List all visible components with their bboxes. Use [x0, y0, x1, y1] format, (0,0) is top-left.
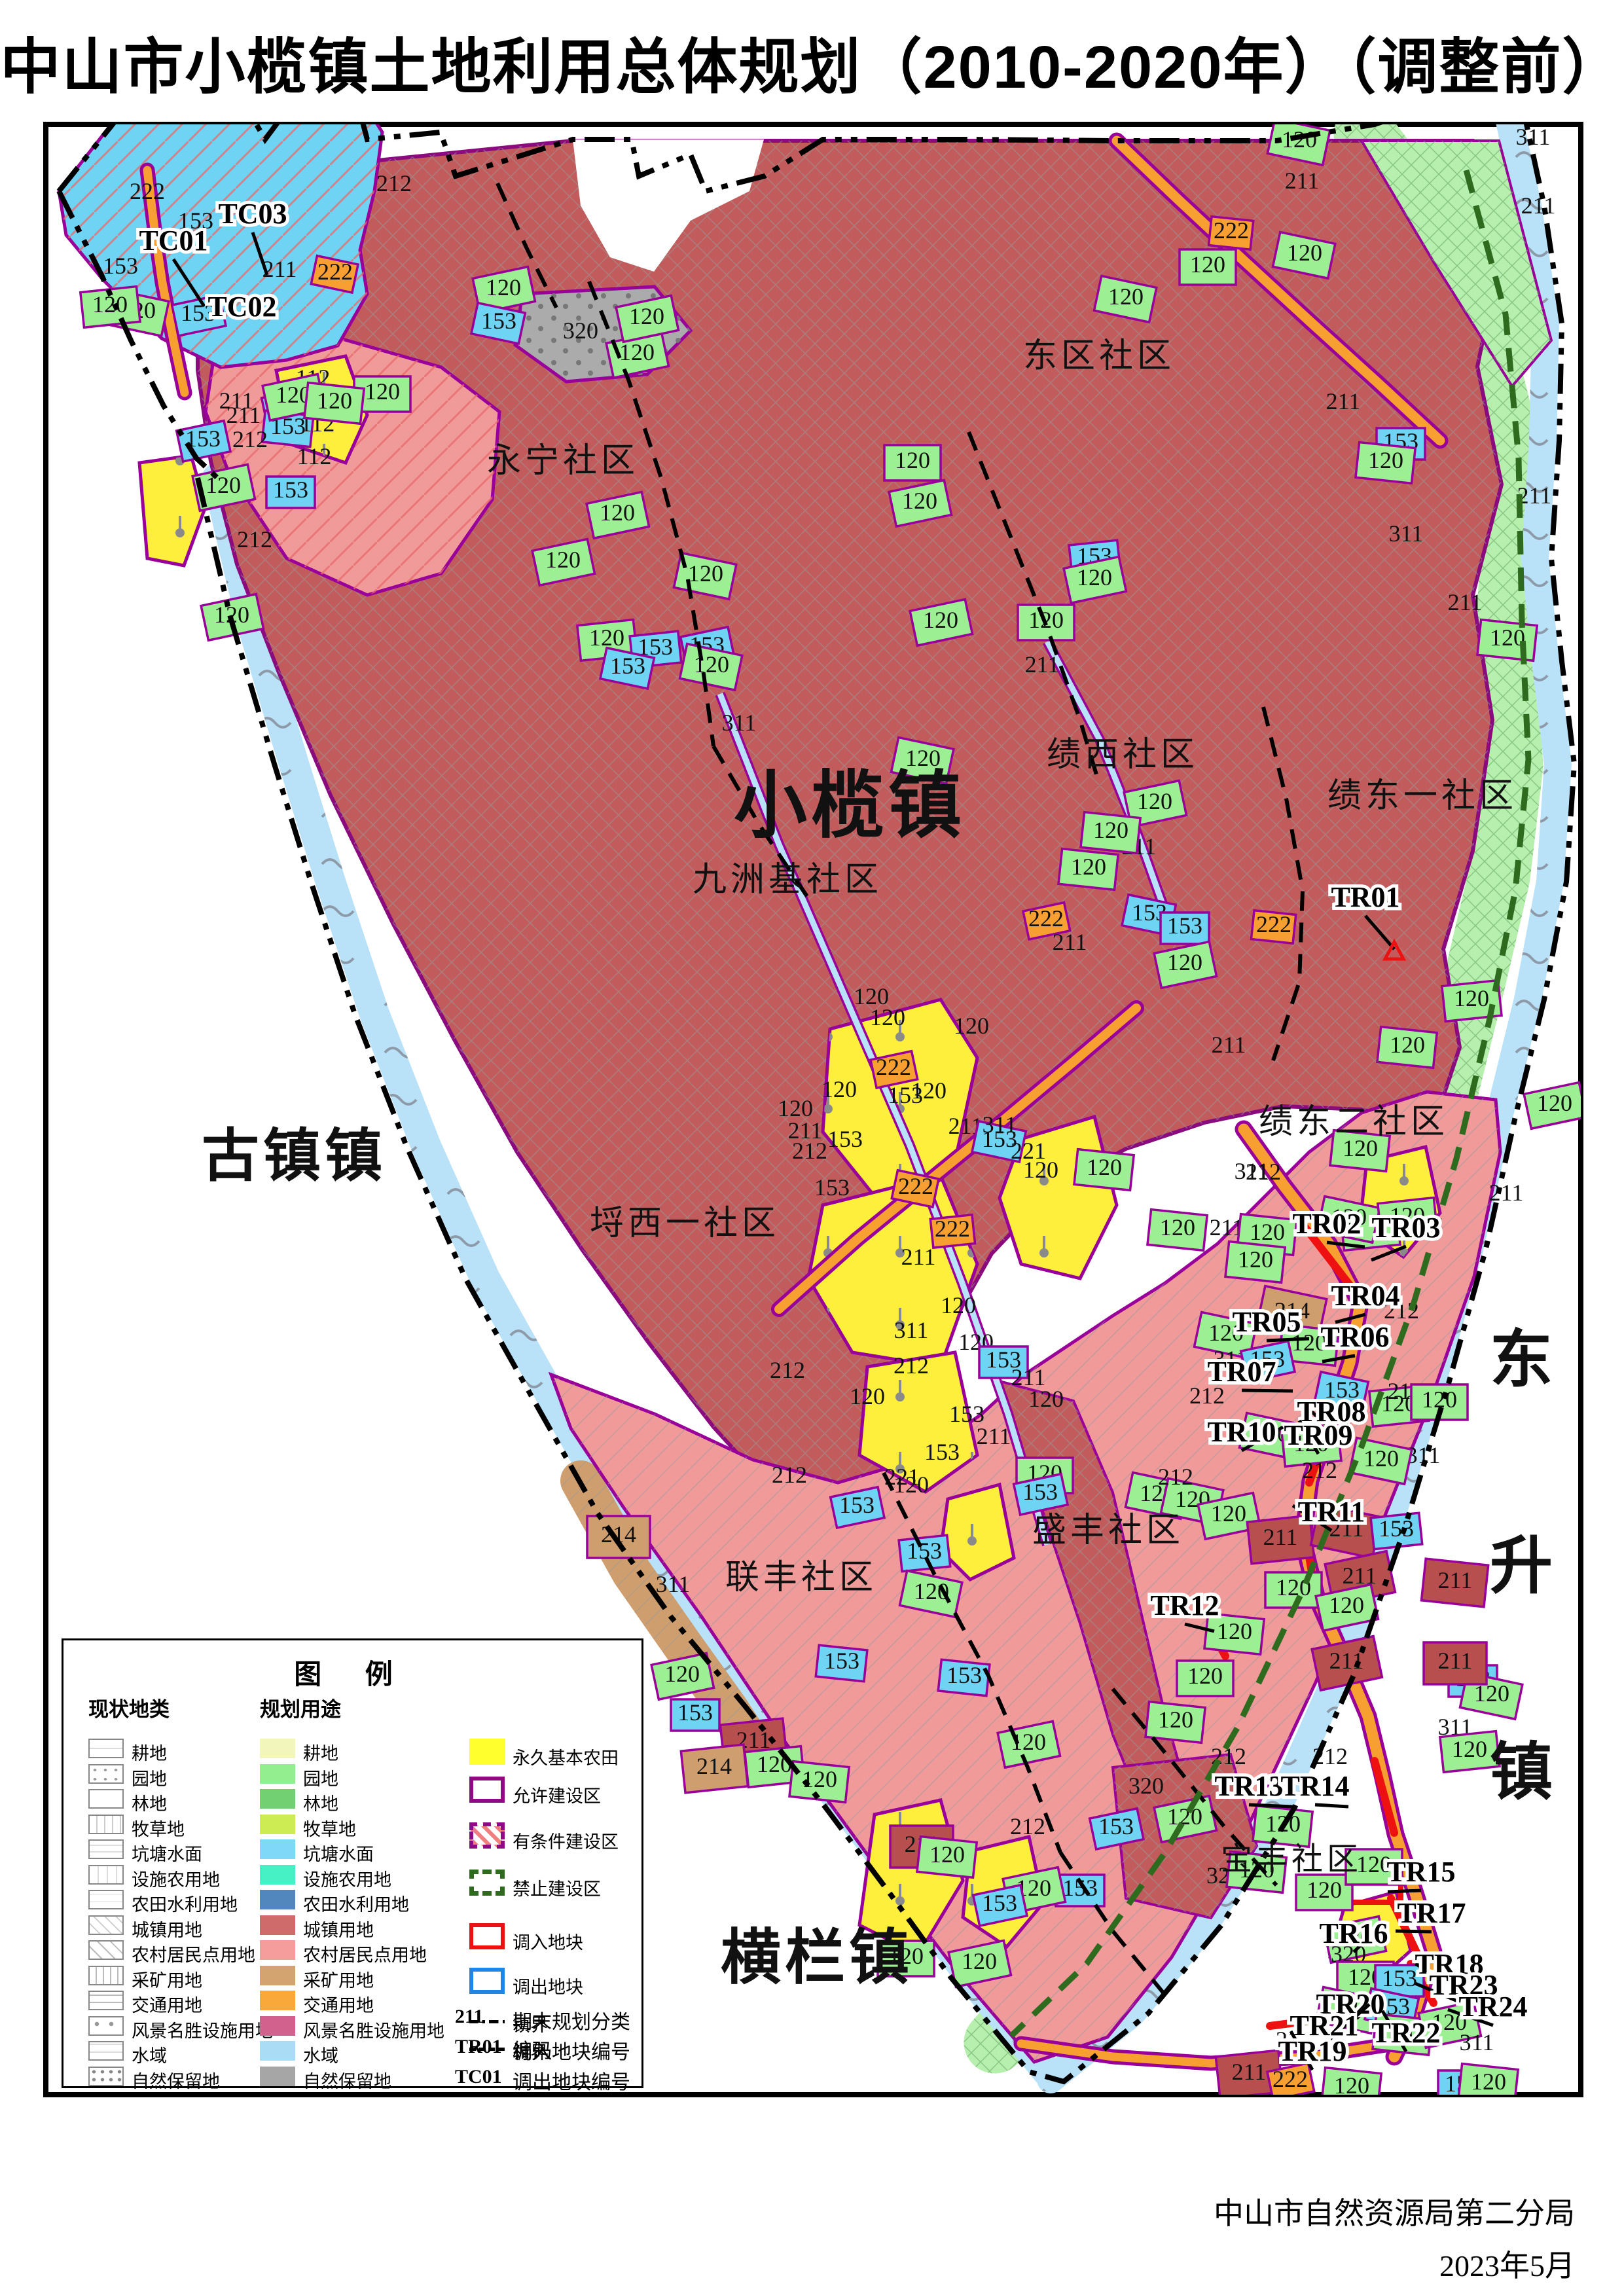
land-code-label: 211	[1438, 1648, 1473, 1674]
land-code-label: 120	[1023, 1157, 1058, 1183]
legend-row-current: 农田水利用地	[88, 1890, 245, 1912]
legend-label: 水域	[303, 2042, 338, 2067]
adjust-in-plot-marker: TR24	[1458, 1991, 1527, 2023]
land-code-label: 120	[929, 1841, 965, 1868]
legend-row-zone: 允许建设区	[469, 1777, 640, 1807]
land-code-label: 311	[983, 1111, 1017, 1138]
land-code-label: 153	[103, 253, 138, 279]
adjust-in-plot-marker: TR22	[1371, 2017, 1440, 2049]
land-code-label: 320	[1128, 1773, 1164, 1799]
land-code-label: 211	[226, 402, 261, 428]
land-code-label: 153	[1167, 913, 1202, 939]
legend: 图 例 现状地类 规划用途 耕地园地林地牧草地坑塘水面设施农用地农田水利用地城镇…	[62, 1638, 643, 2088]
land-code-label: 153	[481, 308, 516, 334]
legend-codekey-label: 调入地块编号	[513, 2036, 630, 2065]
legend-swatch-current	[88, 1789, 124, 1809]
land-code-label: 120	[821, 1076, 857, 1102]
place-label: 横栏镇	[721, 1925, 913, 1991]
legend-row-current: 交通用地	[88, 1991, 245, 2013]
legend-label: 城镇用地	[132, 1916, 202, 1942]
legend-label: 农村居民点用地	[132, 1941, 255, 1966]
land-code-label: 212	[1246, 1159, 1281, 1185]
place-label: 九洲基社区	[693, 861, 882, 899]
legend-label: 耕地	[303, 1739, 338, 1765]
adjust-in-plot-marker: TR07	[1207, 1356, 1276, 1388]
land-code-label: 211	[1521, 192, 1556, 219]
legend-label: 水域	[132, 2042, 167, 2067]
land-code-label: 120	[365, 378, 400, 405]
legend-label: 坑塘水面	[303, 1840, 374, 1866]
land-code-label: 153	[982, 1890, 1017, 1916]
adjust-in-plot-marker: TR19	[1278, 2035, 1346, 2067]
marker-leader-line	[1242, 1390, 1293, 1391]
legend-zone-swatch-in	[469, 1923, 505, 1949]
legend-label: 交通用地	[132, 1991, 202, 2017]
adjust-out-plot-marker: TC03	[218, 198, 287, 230]
legend-row-planned: 农田水利用地	[260, 1890, 443, 1912]
legend-label: 风景名胜设施用地	[132, 2017, 273, 2042]
land-code-label: 153	[1379, 1515, 1414, 1542]
land-code-label: 153	[677, 1699, 713, 1726]
land-code-label: 120	[1167, 1803, 1202, 1830]
land-code-label: 214	[696, 1753, 732, 1779]
legend-swatch-current	[88, 2041, 124, 2061]
legend-zone-swatch-forbid	[469, 1870, 505, 1896]
legend-swatch-planned	[260, 1839, 295, 1859]
land-code-label: 120	[1071, 854, 1106, 880]
land-code-label: 120	[1137, 788, 1172, 814]
land-code-label: 211	[1285, 168, 1320, 194]
adjust-in-plot-marker: TR14	[1280, 1770, 1349, 1802]
legend-row-zone: 有条件建设区	[469, 1822, 640, 1852]
land-code-label: 120	[1160, 1214, 1195, 1240]
legend-swatch-current	[88, 2067, 124, 2086]
land-code-label: 120	[600, 499, 635, 526]
legend-swatch-current	[88, 1764, 124, 1784]
legend-row-planned: 耕地	[260, 1739, 443, 1761]
legend-label: 允许建设区	[513, 1782, 601, 1807]
legend-zone-swatch-out	[469, 1968, 505, 1994]
land-code-label: 120	[923, 607, 958, 633]
footer-date: 2023年5月	[1439, 2242, 1575, 2285]
adjust-out-plot-marker: TC02	[208, 291, 276, 323]
land-code-label: 120	[1087, 1154, 1122, 1180]
legend-label: 城镇用地	[303, 1916, 374, 1942]
land-code-label: 211	[1438, 1567, 1473, 1593]
land-code-label: 120	[619, 339, 655, 365]
land-code-label: 120	[317, 388, 352, 414]
land-code-label: 212	[1158, 1464, 1193, 1490]
legend-row-current: 耕地	[88, 1739, 245, 1761]
land-code-label: 211	[1326, 388, 1361, 414]
legend-row-zone: 调出地块	[469, 1968, 640, 1998]
legend-row-zone: 永久基本农田	[469, 1739, 640, 1769]
adjust-out-plot-marker: TC01	[139, 225, 208, 257]
legend-label: 园地	[303, 1765, 338, 1790]
land-code-label: 211	[1448, 589, 1483, 615]
land-code-label: 120	[1028, 1386, 1064, 1412]
land-code-label: 153	[824, 1648, 859, 1674]
land-code-label: 120	[1190, 251, 1225, 278]
legend-label: 自然保留地	[132, 2067, 220, 2093]
legend-row-planned: 牧草地	[260, 1815, 443, 1837]
land-code-label: 311	[1460, 2029, 1494, 2055]
adjust-in-plot-marker: TR06	[1320, 1321, 1389, 1353]
land-code-label: 211	[977, 1423, 1011, 1449]
legend-row-current: 园地	[88, 1764, 245, 1786]
land-code-label: 153	[273, 477, 308, 503]
legend-swatch-planned	[260, 2016, 295, 2036]
footer-agency: 中山市自然资源局第二分局	[1214, 2190, 1575, 2233]
legend-label: 耕地	[132, 1739, 167, 1765]
legend-swatch-planned	[260, 1890, 295, 1909]
legend-label: 禁止建设区	[513, 1875, 601, 1900]
place-label: 小榄镇	[734, 766, 965, 847]
legend-label: 园地	[132, 1765, 167, 1790]
place-label: 宝丰社区	[1221, 1842, 1362, 1877]
legend-swatch-current	[88, 1815, 124, 1834]
land-code-label: 222	[898, 1173, 933, 1199]
legend-label: 农田水利用地	[132, 1890, 238, 1916]
legend-row-codekey: TR01调入地块编号	[455, 2036, 645, 2058]
legend-swatch-planned	[260, 1865, 295, 1885]
legend-swatch-current	[88, 1940, 124, 1960]
legend-row-codekey: TC01调出地块编号	[455, 2066, 645, 2088]
adjust-in-plot-marker: TR17	[1397, 1897, 1466, 1929]
legend-swatch-current	[88, 1915, 124, 1935]
legend-swatch-current	[88, 1890, 124, 1909]
land-code-label: 222	[1272, 2066, 1308, 2092]
land-code-label: 120	[688, 560, 723, 587]
land-code-label: 211	[901, 1244, 936, 1270]
legend-swatch-planned	[260, 1991, 295, 2010]
legend-swatch-planned	[260, 1815, 295, 1834]
land-code-label: 120	[1108, 283, 1144, 310]
place-label: 东区社区	[1023, 338, 1175, 375]
land-code-label: 211	[1025, 651, 1060, 678]
legend-swatch-planned	[260, 2041, 295, 2061]
legend-swatch-planned	[260, 1940, 295, 1960]
land-code-label: 311	[894, 1317, 929, 1343]
land-code-label: 120	[1167, 949, 1202, 975]
land-code-label: 222	[1256, 911, 1291, 937]
land-code-label: 212	[1302, 1457, 1337, 1483]
land-code-label: 212	[232, 426, 268, 452]
land-code-label: 211	[262, 256, 297, 282]
land-code-label: 222	[317, 259, 353, 285]
land-code-label: 153	[1022, 1479, 1058, 1505]
land-code-label: 153	[924, 1439, 960, 1465]
land-code-label: 222	[1028, 905, 1064, 931]
legend-swatch-planned	[260, 2067, 295, 2086]
legend-row-planned: 采矿用地	[260, 1966, 443, 1988]
legend-row-planned: 设施农用地	[260, 1865, 443, 1887]
legend-swatch-planned	[260, 1966, 295, 1985]
legend-row-planned: 交通用地	[260, 1991, 443, 2013]
legend-zone-swatch-pbf	[469, 1739, 505, 1765]
land-code-label: 212	[770, 1357, 805, 1383]
place-label: 绩西社区	[1047, 736, 1199, 774]
land-code-label: 211	[1232, 2059, 1267, 2085]
legend-row-current: 风景名胜设施用地	[88, 2016, 245, 2038]
adjust-in-plot-marker: TR03	[1371, 1212, 1440, 1244]
legend-current-header: 现状地类	[88, 1693, 170, 1722]
legend-codekey-symbol: TC01	[455, 2066, 502, 2088]
land-code-label: 320	[563, 317, 598, 344]
land-code-label: 120	[1217, 1618, 1252, 1644]
legend-planned-header: 规划用途	[260, 1693, 341, 1722]
land-code-label: 311	[722, 710, 757, 736]
legend-zone-swatch-allow	[469, 1777, 505, 1803]
legend-row-current: 牧草地	[88, 1815, 245, 1837]
land-code-label: 153	[907, 1538, 942, 1564]
legend-row-current: 城镇用地	[88, 1915, 245, 1938]
legend-row-current: 坑塘水面	[88, 1839, 245, 1862]
legend-swatch-planned	[260, 1915, 295, 1935]
place-label: 联丰社区	[725, 1559, 877, 1597]
land-code-label: 222	[1214, 217, 1249, 244]
legend-codekey-label: 调出地块编号	[513, 2066, 630, 2095]
page: 中山市小榄镇土地利用总体规划（2010-2020年）（调整前）	[0, 0, 1624, 2295]
legend-row-current: 设施农用地	[88, 1865, 245, 1887]
land-code-label: 212	[893, 1352, 929, 1379]
legend-label: 设施农用地	[303, 1866, 391, 1891]
legend-label: 有条件建设区	[513, 1828, 619, 1853]
land-code-label: 211	[1329, 1648, 1364, 1674]
land-code-label: 222	[935, 1216, 970, 1242]
adjust-in-plot-marker: TR05	[1232, 1306, 1301, 1338]
land-code-label: 153	[814, 1174, 850, 1201]
land-code-label: 120	[1238, 1246, 1273, 1273]
land-code-label: 212	[237, 526, 272, 552]
land-code-label: 120	[850, 1383, 885, 1409]
place-label: 埒西一社区	[590, 1205, 780, 1242]
adjust-in-plot-marker: TR15	[1386, 1856, 1455, 1888]
legend-row-current: 采矿用地	[88, 1966, 245, 1988]
legend-label: 交通用地	[303, 1991, 374, 2017]
legend-label: 林地	[303, 1790, 338, 1815]
legend-row-planned: 坑塘水面	[260, 1839, 443, 1862]
land-code-label: 211	[1053, 929, 1087, 955]
land-code-label: 120	[954, 1013, 989, 1039]
legend-swatch-current	[88, 1739, 124, 1758]
legend-row-planned: 自然保留地	[260, 2067, 443, 2089]
legend-swatch-planned	[260, 1764, 295, 1784]
land-code-label: 153	[1382, 1965, 1417, 1991]
legend-label: 牧草地	[132, 1815, 185, 1841]
legend-label: 农村居民点用地	[303, 1941, 427, 1966]
legend-row-planned: 农村居民点用地	[260, 1940, 443, 1962]
legend-label: 坑塘水面	[132, 1840, 202, 1866]
legend-swatch-current	[88, 1865, 124, 1885]
marker-leader-line	[1388, 1890, 1421, 1892]
place-label: 绩东一社区	[1327, 778, 1517, 815]
land-code-label: 120	[1158, 1707, 1193, 1733]
legend-label: 永久基本农田	[513, 1744, 619, 1769]
land-code-label: 222	[876, 1054, 911, 1080]
adjust-in-plot-marker: TR09	[1284, 1419, 1352, 1451]
land-code-label: 120	[1093, 817, 1128, 843]
legend-row-codekey: 211期末规划分类编码	[455, 2006, 645, 2028]
legend-label: 采矿用地	[303, 1966, 374, 1992]
land-code-label: 311	[1389, 520, 1424, 547]
land-code-label: 153	[610, 653, 645, 679]
place-label: 永宁社区	[487, 443, 639, 480]
adjust-in-plot-marker: TR16	[1319, 1917, 1388, 1949]
land-code-label: 120	[1250, 1219, 1285, 1245]
place-label: 绩东二社区	[1259, 1104, 1449, 1141]
land-code-label: 212	[772, 1462, 807, 1488]
marker-leader-line	[1315, 1805, 1348, 1807]
land-code-label: 120	[1187, 1663, 1223, 1689]
land-code-label: 211	[1212, 1032, 1246, 1058]
adjust-in-plot-marker: TR04	[1331, 1280, 1399, 1312]
legend-label: 设施农用地	[132, 1866, 220, 1891]
land-code-label: 120	[1211, 1500, 1246, 1527]
land-code-label: 120	[870, 1004, 905, 1030]
land-code-label: 120	[1077, 564, 1112, 590]
land-code-label: 120	[1537, 1090, 1572, 1116]
adjust-in-plot-marker: TR01	[1331, 881, 1399, 913]
legend-swatch-planned	[260, 1739, 295, 1758]
adjust-in-plot-marker: TR10	[1207, 1416, 1276, 1448]
legend-label: 农田水利用地	[303, 1890, 409, 1916]
land-code-label: 120	[545, 547, 581, 573]
land-code-label: 120	[1368, 447, 1403, 473]
legend-row-current: 水域	[88, 2041, 245, 2063]
legend-row-planned: 城镇用地	[260, 1915, 443, 1938]
land-code-label: 120	[911, 1077, 947, 1104]
land-code-label: 120	[1490, 624, 1525, 651]
legend-row-planned: 风景名胜设施用地	[260, 2016, 443, 2038]
land-code-label: 153	[827, 1126, 863, 1152]
adjust-in-plot-marker: TR11	[1298, 1496, 1365, 1528]
land-code-label: 212	[792, 1138, 827, 1164]
land-code-label: 153	[839, 1492, 875, 1518]
legend-row-current: 自然保留地	[88, 2067, 245, 2089]
legend-label: 林地	[132, 1790, 167, 1815]
land-code-label: 212	[1010, 1813, 1045, 1839]
land-code-label: 120	[1452, 1736, 1487, 1762]
legend-label: 牧草地	[303, 1815, 356, 1841]
legend-row-planned: 水域	[260, 2041, 443, 2063]
legend-label: 调入地块	[513, 1928, 583, 1954]
land-code-label: 120	[206, 472, 241, 498]
legend-row-current: 林地	[88, 1789, 245, 1811]
land-code-label: 120	[1329, 1592, 1364, 1618]
land-code-label: 222	[130, 178, 165, 204]
legend-row-planned: 园地	[260, 1764, 443, 1786]
land-code-label: 311	[1516, 124, 1551, 150]
land-code-label: 153	[947, 1662, 982, 1688]
place-label: 古镇镇	[202, 1125, 386, 1189]
land-code-label: 120	[1334, 2072, 1369, 2099]
land-code-label: 120	[1287, 240, 1322, 266]
legend-label: 调出地块	[513, 1973, 583, 1998]
legend-label: 风景名胜设施用地	[303, 2017, 444, 2042]
adjust-in-plot-marker: TR02	[1292, 1208, 1361, 1240]
land-code-label: 120	[664, 1661, 700, 1687]
legend-row-zone: 禁止建设区	[469, 1870, 640, 1900]
legend-title: 图 例	[63, 1652, 641, 1692]
marker-leader-line	[1396, 1931, 1432, 1932]
legend-row-zone: 调入地块	[469, 1923, 640, 1953]
legend-swatch-current	[88, 1966, 124, 1985]
adjust-in-plot-marker: TR12	[1150, 1589, 1219, 1621]
land-code-label: 120	[1471, 2069, 1506, 2095]
place-label: 盛丰社区	[1032, 1512, 1184, 1549]
land-code-label: 120	[1363, 1445, 1399, 1472]
legend-label: 采矿用地	[132, 1966, 202, 1992]
land-code-label: 120	[1307, 1877, 1342, 1903]
land-code-label: 211	[1263, 1524, 1298, 1550]
marker-leader-line	[1249, 1805, 1293, 1807]
land-code-label: 311	[656, 1571, 691, 1597]
legend-codekey-symbol: TR01	[455, 2036, 502, 2058]
legend-swatch-current	[88, 1991, 124, 2010]
legend-swatch-current	[88, 2016, 124, 2036]
legend-label: 自然保留地	[303, 2067, 391, 2093]
legend-zone-swatch-cond	[469, 1822, 505, 1849]
adjust-in-plot-marker: TR13	[1214, 1770, 1283, 1802]
legend-swatch-planned	[260, 1789, 295, 1809]
land-code-label: 120	[941, 1292, 976, 1318]
land-code-label: 153	[1098, 1813, 1134, 1839]
land-code-label: 120	[629, 303, 664, 329]
land-code-label: 112	[297, 443, 332, 469]
land-code-label: 120	[962, 1948, 997, 1974]
legend-row-current: 农村居民点用地	[88, 1940, 245, 1962]
legend-row-planned: 林地	[260, 1789, 443, 1811]
land-code-label: 120	[802, 1766, 837, 1792]
land-code-label: 120	[1390, 1032, 1425, 1058]
land-code-label: 120	[1454, 985, 1489, 1011]
land-code-label: 120	[902, 488, 937, 514]
land-code-label: 120	[895, 447, 930, 473]
legend-swatch-current	[88, 1839, 124, 1859]
legend-codekey-symbol: 211	[455, 2006, 483, 2028]
land-code-label: 120	[486, 274, 521, 300]
land-code-label: 212	[376, 170, 412, 196]
marker-leader-line	[1267, 1339, 1309, 1341]
land-code-label: 211	[1489, 1180, 1524, 1206]
